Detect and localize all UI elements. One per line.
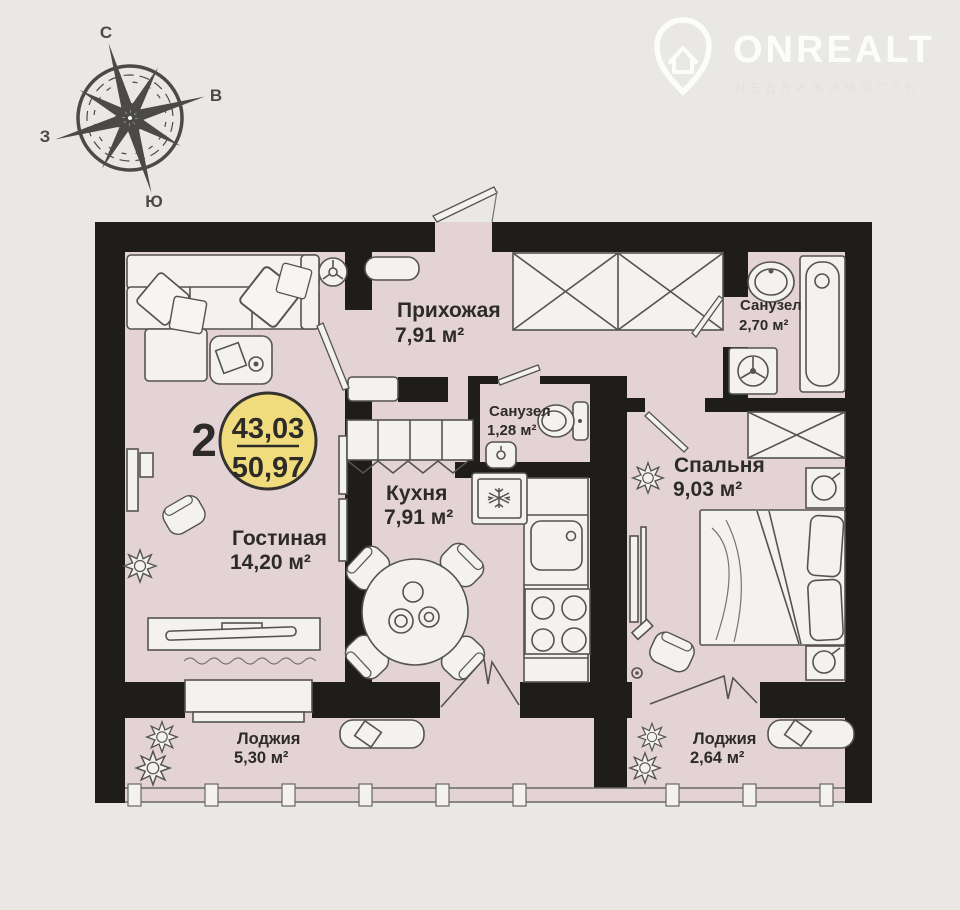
bedroom-wardrobe: [748, 412, 845, 458]
plant-icon: [633, 463, 663, 493]
plant-icon: [147, 722, 177, 752]
plant-icon: [638, 723, 665, 750]
plant-icon: [630, 753, 660, 783]
bench: [768, 720, 854, 748]
tv-stand: [148, 618, 320, 650]
room-bedroom-name: Спальня: [674, 454, 765, 477]
brand-name: ONREALT: [733, 29, 935, 71]
console-shelf: [365, 257, 419, 280]
rooms-count: 2: [191, 414, 217, 466]
living-area-value: 43,03: [232, 413, 305, 445]
nightstand: [806, 468, 845, 508]
room-bathroom-main-area: 2,70 м²: [739, 317, 788, 334]
room-loggia-right-area: 2,64 м²: [690, 749, 745, 767]
room-living-name: Гостиная: [232, 527, 327, 550]
fridge-icon: [472, 473, 527, 524]
room-loggia-right-name: Лоджия: [693, 730, 756, 748]
plant-icon: [136, 751, 170, 785]
compass-south-label: Ю: [145, 192, 163, 211]
total-area-value: 50,97: [232, 452, 305, 484]
small-sink-icon: [486, 442, 516, 468]
compass-west-label: З: [40, 127, 51, 146]
compass-north-label: С: [100, 23, 112, 42]
stove-icon: [525, 589, 590, 654]
room-bathroom-main-name: Санузел: [740, 297, 802, 314]
room-hallway-name: Прихожая: [397, 299, 501, 322]
brand-tagline: НЕДВИЖИМОСТЬ: [736, 80, 921, 95]
living-room-window: [185, 680, 312, 722]
coffee-table: [210, 336, 272, 384]
plant-icon: [124, 550, 156, 582]
wall-loggia-divider: [594, 718, 627, 788]
floor-plan-page: С В З Ю ONREALT НЕДВИЖИМОСТЬ: [0, 0, 960, 910]
bathtub-icon: [800, 256, 845, 392]
room-kitchen-name: Кухня: [386, 482, 447, 505]
wall-stub-hallway: [398, 377, 448, 402]
wall-right: [845, 222, 872, 803]
bench: [340, 720, 424, 748]
room-living-area: 14,20 м²: [230, 551, 311, 574]
floor-plan-canvas: С В З Ю ONREALT НЕДВИЖИМОСТЬ: [0, 0, 960, 910]
floor-lamp-icon: [319, 258, 347, 286]
wardrobe: [513, 253, 723, 330]
room-bathroom-small-area: 1,28 м²: [487, 422, 536, 439]
room-kitchen-area: 7,91 м²: [384, 506, 453, 529]
shelf-strip: [339, 499, 347, 561]
compass-east-label: В: [210, 86, 222, 105]
room-hallway-area: 7,91 м²: [395, 324, 464, 347]
kitchen-sink-icon: [531, 521, 582, 570]
wall-left: [95, 222, 125, 803]
nightstand: [806, 646, 845, 680]
room-loggia-left-name: Лоджия: [237, 730, 300, 748]
double-bed: [700, 510, 845, 645]
room-bathroom-small-name: Санузел: [489, 403, 551, 420]
dining-table: [341, 539, 489, 684]
sink-icon: [748, 262, 794, 302]
cabinet: [348, 377, 398, 401]
shelf-strip: [339, 436, 347, 494]
room-loggia-left-area: 5,30 м²: [234, 749, 289, 767]
washing-machine-icon: [729, 348, 777, 394]
room-bedroom-area: 9,03 м²: [673, 478, 742, 501]
